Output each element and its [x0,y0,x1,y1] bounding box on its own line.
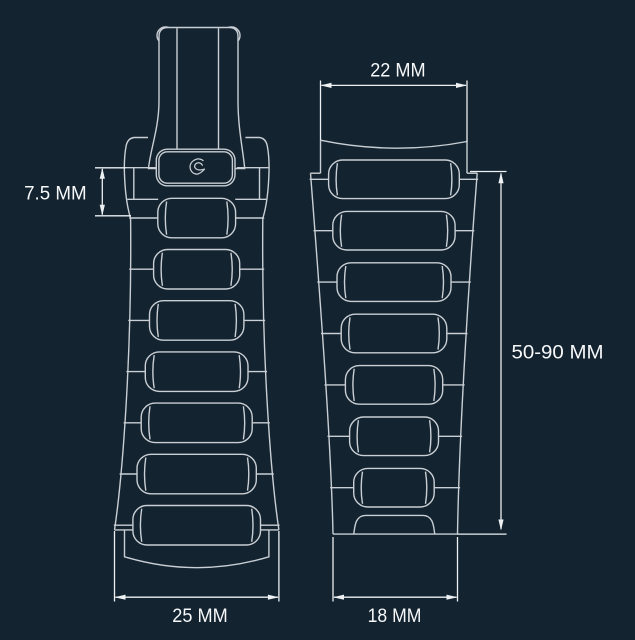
svg-text:22 MM: 22 MM [370,61,425,82]
svg-text:18 MM: 18 MM [368,606,422,627]
svg-text:50-90 MM: 50-90 MM [512,343,604,364]
svg-text:7.5 MM: 7.5 MM [24,183,87,204]
svg-text:25 MM: 25 MM [172,606,227,627]
